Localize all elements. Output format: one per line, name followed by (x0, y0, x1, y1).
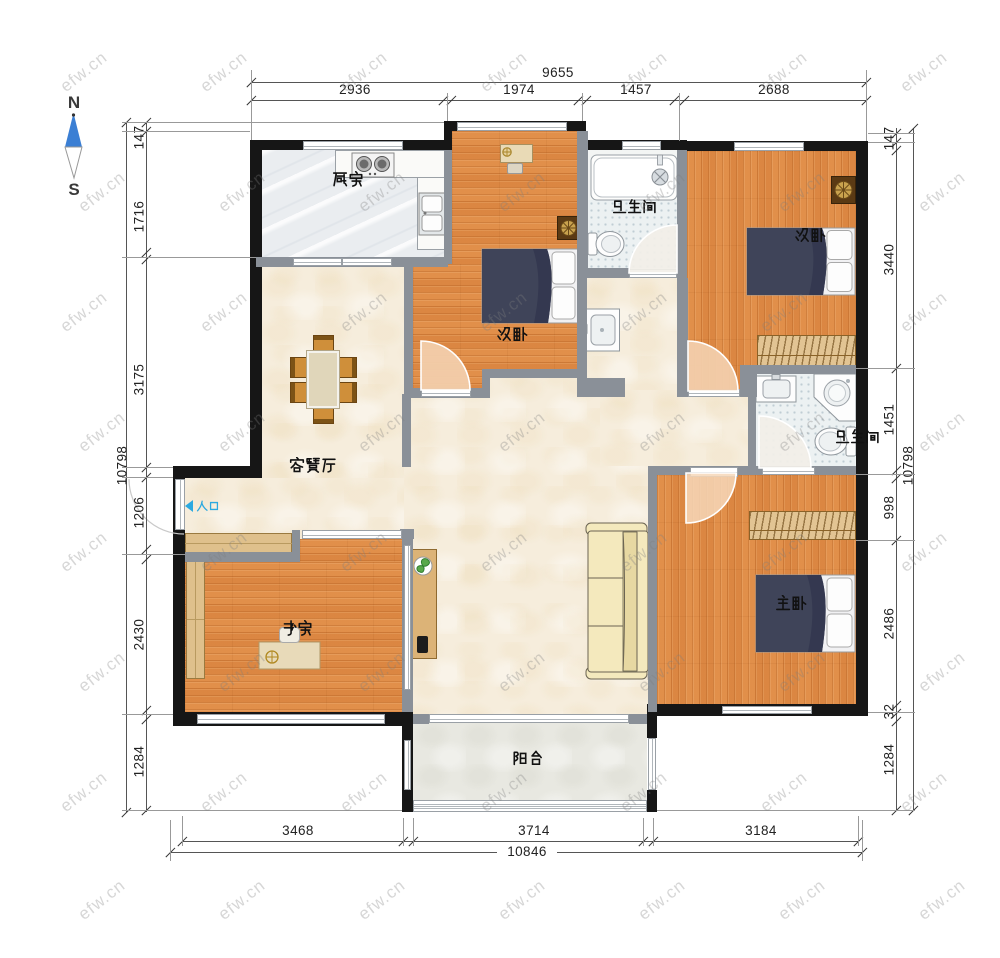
svg-text:N: N (68, 93, 80, 112)
svg-text:S: S (68, 180, 79, 199)
